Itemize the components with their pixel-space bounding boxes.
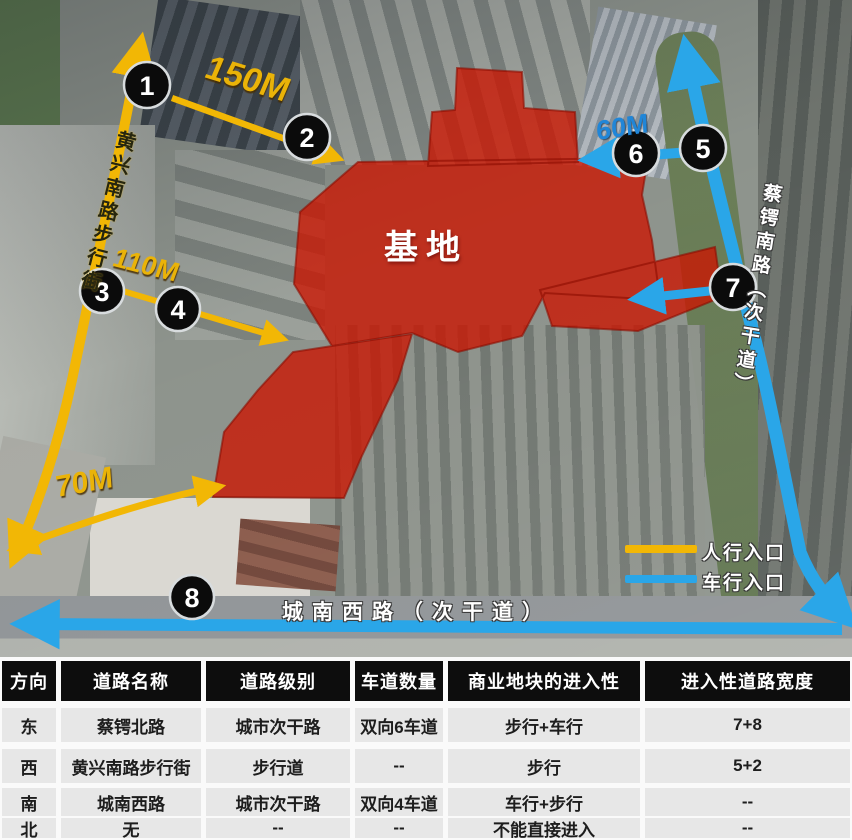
cell-road-name: 城南西路	[61, 788, 201, 816]
header-lane-count: 车道数量	[355, 661, 443, 701]
table-row-west: 西 黄兴南路步行街 步行道 -- 步行 5+2	[0, 749, 852, 783]
cell-direction: 南	[2, 788, 56, 816]
legend-pedestrian-label: 人行入口	[702, 538, 786, 565]
cell-road-name: 蔡锷北路	[61, 708, 201, 742]
cell-road-level: 城市次干路	[206, 708, 350, 742]
cell-access-width: --	[645, 788, 850, 816]
cell-accessibility: 车行+步行	[448, 788, 640, 816]
site-label: 基地	[384, 220, 468, 269]
marker-8: 8	[170, 575, 214, 619]
cell-direction: 东	[2, 708, 56, 742]
cell-access-width: 7+8	[645, 708, 850, 742]
cell-road-name: 黄兴南路步行街	[61, 749, 201, 783]
cell-accessibility: 步行	[448, 749, 640, 783]
header-accessibility: 商业地块的进入性	[448, 661, 640, 701]
marker-7-label: 7	[725, 273, 740, 303]
table-row-east: 东 蔡锷北路 城市次干路 双向6车道 步行+车行 7+8	[0, 708, 852, 742]
marker-5-label: 5	[695, 134, 710, 164]
marker-2-label: 2	[299, 123, 314, 153]
header-road-name: 道路名称	[61, 661, 201, 701]
cell-lane-count: 双向4车道	[355, 788, 443, 816]
cell-direction: 北	[2, 818, 56, 838]
legend-vehicle-line	[625, 575, 697, 583]
header-direction: 方向	[2, 661, 56, 701]
cell-lane-count: 双向6车道	[355, 708, 443, 742]
marker-5: 5	[680, 125, 726, 171]
cell-lane-count: --	[355, 818, 443, 838]
distance-70m-arrow	[20, 488, 212, 546]
cell-road-level: --	[206, 818, 350, 838]
cell-road-name: 无	[61, 818, 201, 838]
header-access-width: 进入性道路宽度	[645, 661, 850, 701]
marker-8-label: 8	[184, 583, 199, 613]
road-access-table: 方向 道路名称 道路级别 车道数量 商业地块的进入性 进入性道路宽度 东 蔡锷北…	[0, 657, 852, 840]
legend-pedestrian-line	[625, 545, 697, 553]
marker-1-label: 1	[139, 71, 154, 101]
cell-accessibility: 不能直接进入	[448, 818, 640, 838]
cell-lane-count: --	[355, 749, 443, 783]
marker-2: 2	[284, 114, 330, 160]
table-header-row: 方向 道路名称 道路级别 车道数量 商业地块的进入性 进入性道路宽度	[0, 661, 852, 701]
marker-4: 4	[156, 287, 200, 331]
cell-road-level: 步行道	[206, 749, 350, 783]
cell-accessibility: 步行+车行	[448, 708, 640, 742]
cell-direction: 西	[2, 749, 56, 783]
marker-6-label: 6	[628, 139, 643, 169]
table-row-south: 南 城南西路 城市次干路 双向4车道 车行+步行 --	[0, 788, 852, 816]
table-row-north: 北 无 -- -- 不能直接进入 --	[0, 818, 852, 838]
marker-1: 1	[124, 62, 170, 108]
marker-4-label: 4	[170, 295, 185, 325]
cell-access-width: 5+2	[645, 749, 850, 783]
legend-vehicle-label: 车行入口	[702, 568, 786, 595]
south-road-label: 城南西路（次干道）	[282, 596, 552, 626]
aerial-site-map: 1 2 3 4 5 6 7 8 基地	[0, 0, 852, 657]
cell-road-level: 城市次干路	[206, 788, 350, 816]
cell-access-width: --	[645, 818, 850, 838]
header-road-level: 道路级别	[206, 661, 350, 701]
